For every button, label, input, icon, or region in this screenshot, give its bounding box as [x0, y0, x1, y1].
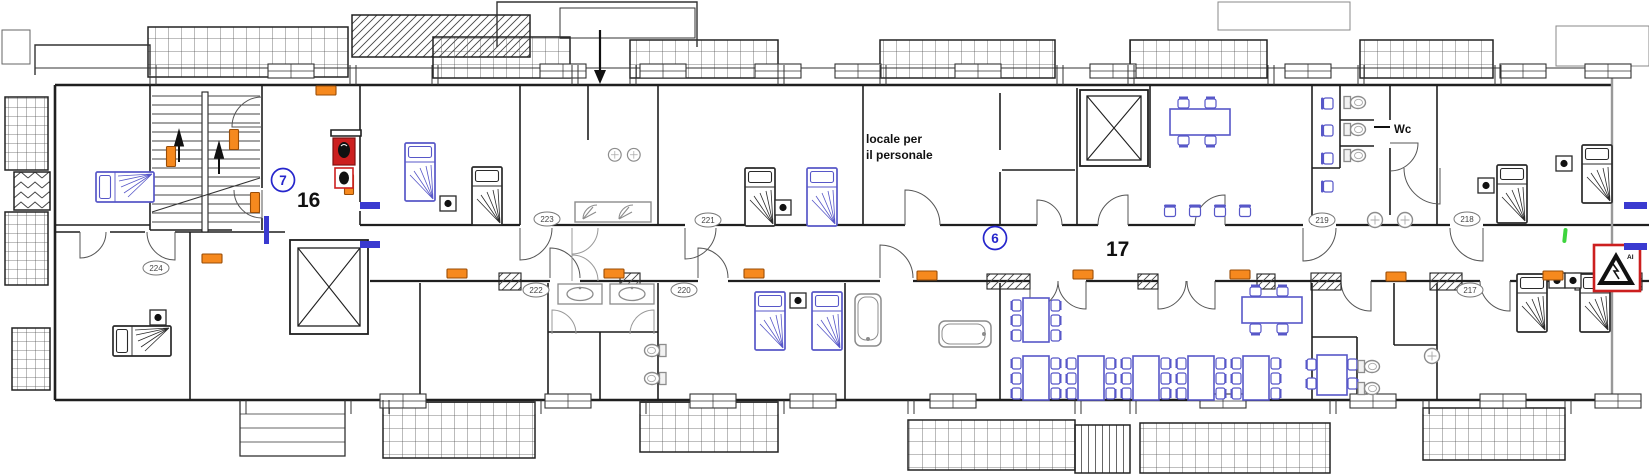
- room-badge-221: 221: [695, 213, 721, 227]
- balcony: [1423, 408, 1565, 460]
- shower-unit: [575, 202, 651, 222]
- window-sill: [690, 394, 736, 408]
- bed: [812, 292, 842, 350]
- emergency-light-marker: [917, 271, 937, 280]
- door-arc: [880, 245, 913, 278]
- room-badge-217: 217: [1457, 283, 1483, 297]
- emergency-light-marker: [604, 269, 624, 278]
- balcony: [148, 27, 348, 77]
- stair-direction-arrow-icon: [175, 130, 224, 174]
- toilet: [645, 373, 667, 385]
- door-arc: [552, 310, 576, 334]
- emergency-light-marker: [202, 254, 222, 263]
- elevator-shaft-north: [1080, 90, 1148, 166]
- chair: [1321, 125, 1333, 137]
- window-sill: [1585, 64, 1631, 78]
- wall-pier: [987, 274, 1030, 289]
- emergency-light-marker: [230, 130, 239, 150]
- room-badge-220: 220: [671, 283, 697, 297]
- door-arc: [80, 232, 106, 258]
- door-arc: [1404, 168, 1440, 204]
- door-arc: [550, 248, 580, 278]
- toilet: [1344, 124, 1366, 136]
- balcony: [1130, 40, 1267, 78]
- door-arc: [520, 228, 552, 260]
- door-arc: [1037, 200, 1062, 225]
- toilet: [1344, 150, 1366, 162]
- bed: [113, 326, 171, 356]
- window-sill: [1090, 64, 1136, 78]
- facade-tick: [1330, 400, 1336, 414]
- bathtub: [939, 321, 991, 347]
- round-sink: [1425, 349, 1440, 364]
- facade-tick: [1565, 400, 1571, 414]
- nightstand: [775, 200, 791, 215]
- facade-tick: [908, 400, 914, 414]
- round-sink: [1368, 213, 1383, 228]
- elevator-shaft-west: [290, 240, 368, 334]
- balcony: [640, 402, 778, 452]
- sink-counter: [610, 284, 654, 304]
- door-arc: [1480, 281, 1510, 311]
- external-stair: [1075, 425, 1130, 473]
- bed: [807, 168, 837, 226]
- wall-pier: [1311, 273, 1341, 290]
- window-sill: [545, 394, 591, 408]
- window-sill: [955, 64, 1001, 78]
- round-sink: [608, 148, 621, 161]
- sink-counter: [558, 284, 602, 304]
- dining-table: [1121, 356, 1172, 400]
- chair: [1321, 181, 1333, 193]
- zone-right-badge: 6: [984, 227, 1007, 250]
- warning-sign-text: AI: [1627, 254, 1634, 261]
- door-arc: [905, 190, 940, 225]
- balcony: [908, 420, 1075, 470]
- svg-text:224: 224: [149, 264, 163, 273]
- balcony: [1360, 40, 1493, 78]
- window-sill: [1500, 64, 1546, 78]
- window-sill: [835, 64, 881, 78]
- wall-pier: [499, 273, 521, 290]
- bathtub: [855, 294, 881, 346]
- nightstand: [790, 293, 806, 308]
- bed: [1517, 274, 1547, 332]
- hazard-warning-sign: AI: [1594, 245, 1640, 291]
- nightstand: [1556, 156, 1572, 171]
- wc-label: Wc: [1394, 124, 1412, 136]
- entrance-porch: [240, 400, 345, 456]
- chair: [1189, 205, 1201, 217]
- room-badge-219: 219: [1309, 213, 1335, 227]
- emergency-light-marker: [744, 269, 764, 278]
- toilet: [1358, 383, 1380, 395]
- door-arc: [232, 97, 262, 127]
- room-badge-224: 224: [143, 261, 169, 275]
- emergency-light-marker: [167, 147, 176, 167]
- bed: [405, 143, 435, 201]
- round-sink: [627, 148, 640, 161]
- room-badge-222: 222: [523, 283, 549, 297]
- staff-room-label-line1: locale per: [866, 132, 922, 146]
- balcony: [14, 172, 50, 210]
- svg-text:222: 222: [529, 286, 543, 295]
- floor-plan-stage: AI 7 16 6 17 locale per il personale Wc …: [0, 0, 1649, 476]
- door-arc: [1341, 281, 1371, 311]
- zone-right-number: 17: [1106, 238, 1129, 261]
- facade-tick: [1075, 400, 1081, 414]
- meeting-table: [1170, 97, 1230, 148]
- door-arc: [1158, 281, 1186, 309]
- window-sill: [540, 64, 586, 78]
- svg-text:221: 221: [701, 216, 715, 225]
- emergency-light-marker: [1230, 270, 1250, 279]
- staff-room-label-line2: il personale: [866, 148, 933, 162]
- room-badge-218: 218: [1454, 212, 1480, 226]
- toilet: [1344, 97, 1366, 109]
- balcony: [383, 402, 535, 458]
- balcony: [1140, 423, 1330, 473]
- door-arc: [630, 310, 654, 334]
- room-badge-223: 223: [534, 212, 560, 226]
- dining-table: [1176, 356, 1227, 400]
- window-sill: [930, 394, 976, 408]
- svg-text:219: 219: [1315, 216, 1329, 225]
- zone-left-badge-number: 7: [279, 173, 287, 188]
- balcony: [5, 212, 48, 285]
- wall-pier: [1138, 274, 1158, 289]
- door-arc: [685, 228, 716, 259]
- small-table: [1306, 355, 1359, 395]
- bed: [755, 292, 785, 350]
- window-sill: [1350, 394, 1396, 408]
- chair: [1164, 205, 1176, 217]
- emergency-light-marker: [316, 86, 336, 95]
- chair: [1321, 153, 1333, 165]
- door-arc: [1058, 281, 1086, 309]
- window-sill: [380, 394, 426, 408]
- door-arc: [1187, 281, 1215, 309]
- nightstand: [150, 310, 166, 325]
- fire-extinguisher-box: [335, 168, 353, 188]
- window-sill: [1285, 64, 1331, 78]
- emergency-light-marker: [1386, 272, 1406, 281]
- zone-left-number: 16: [297, 189, 320, 212]
- window-sill: [640, 64, 686, 78]
- round-sink: [1398, 213, 1413, 228]
- bed: [96, 172, 154, 202]
- chair: [1239, 205, 1251, 217]
- dining-table: [1066, 356, 1117, 400]
- inspection-check-mark: [1562, 228, 1568, 243]
- balcony: [5, 97, 48, 170]
- fire-hydrant-box: [333, 138, 355, 165]
- toilet: [1358, 361, 1380, 373]
- toilet: [645, 345, 667, 357]
- facade-tick: [1130, 400, 1136, 414]
- nightstand: [440, 196, 456, 211]
- window-sill: [1480, 394, 1526, 408]
- floor-plan-svg: AI 7 16 6 17 locale per il personale Wc …: [0, 0, 1649, 476]
- door-arc: [698, 248, 728, 278]
- bed: [1497, 165, 1527, 223]
- emergency-light-marker: [447, 269, 467, 278]
- window-sill: [1595, 394, 1641, 408]
- emergency-light-marker: [1073, 270, 1093, 279]
- emergency-light-marker: [251, 193, 260, 213]
- facade-tick: [345, 400, 351, 414]
- window-sill: [268, 64, 314, 78]
- window-sill: [790, 394, 836, 408]
- door-arc: [1303, 228, 1336, 261]
- chair: [1214, 205, 1226, 217]
- bed: [1582, 145, 1612, 203]
- facade-tick: [778, 400, 784, 414]
- door-arc: [572, 228, 598, 254]
- bed: [745, 168, 775, 226]
- facade-tick: [535, 400, 541, 414]
- zone-left-badge: 7: [272, 169, 295, 192]
- svg-text:223: 223: [540, 215, 554, 224]
- meeting-table: [1242, 285, 1302, 336]
- outer-walls: [55, 85, 1612, 400]
- chair: [1321, 98, 1333, 110]
- door-arc: [1390, 143, 1418, 171]
- dining-table: [1231, 356, 1282, 400]
- door-arc: [147, 232, 175, 260]
- svg-text:217: 217: [1463, 286, 1477, 295]
- door-arc: [1450, 228, 1483, 261]
- dining-table: [1011, 356, 1062, 400]
- nightstand: [1565, 273, 1581, 288]
- bed: [472, 167, 502, 225]
- dining-table: [1011, 298, 1062, 342]
- zone-right-badge-number: 6: [991, 231, 999, 246]
- emergency-light-marker: [1543, 271, 1563, 280]
- nightstand: [1478, 178, 1494, 193]
- svg-text:218: 218: [1460, 215, 1474, 224]
- door-arc: [572, 255, 598, 281]
- balcony: [12, 328, 50, 390]
- wall-pier: [1430, 273, 1462, 290]
- svg-text:220: 220: [677, 286, 691, 295]
- door-arc: [1098, 195, 1128, 225]
